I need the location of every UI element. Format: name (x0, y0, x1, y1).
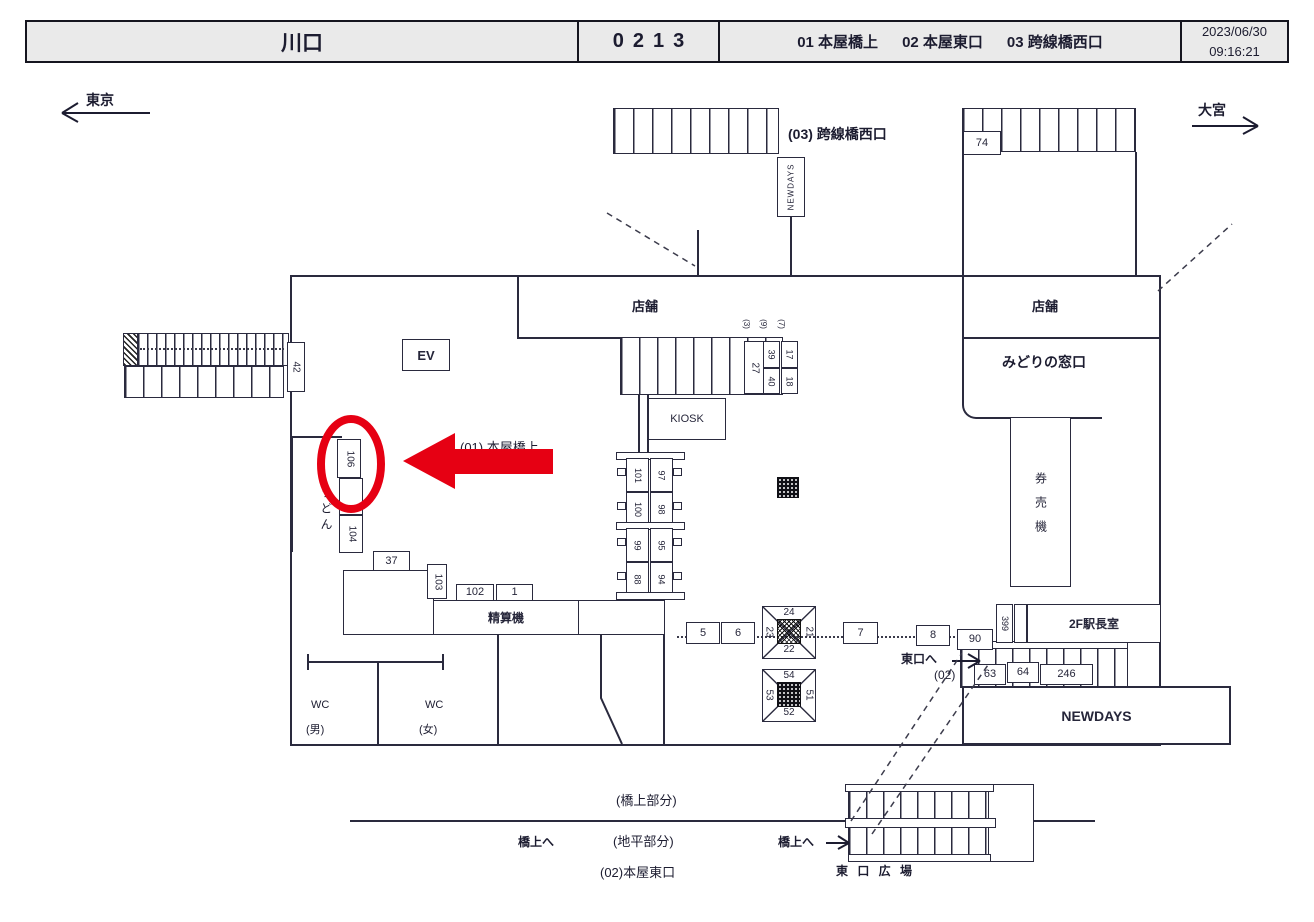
to-east-label: 東口へ (901, 650, 937, 667)
wc-male-sub: (男) (306, 721, 324, 737)
station-code: 0213 (577, 22, 720, 61)
gate-97: 97 (650, 458, 673, 492)
ref-label-3: (7) (771, 317, 791, 331)
area-legend-item-1: 01 本屋橋上 (797, 31, 878, 52)
to-east-code: (02) (934, 668, 955, 682)
escalator-cap (124, 334, 138, 365)
plaza-stairs-cap-top (845, 784, 994, 792)
wall (307, 654, 309, 670)
sign-24: 24 (776, 606, 802, 620)
plaza-stairs-lower-run (848, 826, 989, 856)
wall (517, 275, 519, 339)
sign-7: 7 (843, 622, 878, 644)
ticket-machine-label: 券売機 (1035, 460, 1047, 544)
wall (308, 661, 444, 663)
sign-53: 53 (756, 689, 782, 702)
sign-5: 5 (686, 622, 720, 644)
sign-246: 246 (1040, 664, 1093, 685)
plaza-stairs-cap-bottom (848, 854, 991, 862)
wc-male-label: WC (311, 699, 329, 711)
wall (790, 215, 792, 277)
gate-95: 95 (650, 528, 673, 562)
gate-99: 99 (626, 528, 649, 562)
sign-39: 39 (763, 341, 780, 368)
sign-51: 51 (796, 689, 822, 702)
sign-18: 18 (781, 368, 798, 394)
wall (291, 436, 293, 552)
shop-label-left: 店舗 (632, 296, 658, 315)
sign-399: 399 (996, 604, 1013, 643)
gate-101: 101 (626, 458, 649, 492)
sign-27: 27 (744, 341, 765, 394)
plaza-stairs-upper-run (848, 790, 989, 820)
small-box (1014, 604, 1027, 643)
sign-17: 17 (781, 341, 798, 368)
wall (442, 654, 444, 670)
sign-104: 104 (339, 515, 363, 553)
sign-23: 23 (756, 626, 782, 639)
sign-63: 63 (974, 664, 1006, 685)
udon-label: うどん (318, 486, 335, 534)
stationmaster-box: 2F駅長室 (1027, 604, 1161, 643)
plaza-stairs-cap-middle (845, 818, 996, 828)
gate-tab (673, 502, 682, 510)
sign-covered (339, 478, 363, 515)
gate-tab (617, 502, 626, 510)
sign-103: 103 (427, 564, 447, 599)
sign-52: 52 (774, 706, 804, 720)
area-legend-item-3: 03 跨線橋西口 (1007, 31, 1103, 52)
gate-88: 88 (626, 562, 649, 596)
sign-90: 90 (957, 629, 993, 650)
station-floor-plan: 川口 0213 01 本屋橋上 02 本屋東口 03 跨線橋西口 2023/06… (0, 0, 1314, 922)
newdays-main-box: NEWDAYS (962, 686, 1231, 745)
wall (497, 635, 499, 745)
counter-box (578, 600, 665, 635)
gate-100: 100 (626, 492, 649, 526)
wall (962, 337, 1161, 339)
sign-106: 106 (337, 439, 361, 478)
ground-part-label: (地平部分) (613, 831, 674, 850)
wall (1135, 152, 1137, 277)
escalator-centerline (140, 348, 284, 350)
timestamp: 2023/06/30 09:16:21 (1180, 22, 1287, 61)
gate-cap-bottom (616, 592, 685, 600)
sign-42: 42 (287, 342, 305, 392)
area-label-kosenkyo: (03) 跨線橋西口 (788, 124, 887, 144)
gate-94: 94 (650, 562, 673, 596)
platform-stairs (124, 366, 284, 398)
bridge-stairs-west-left (613, 108, 779, 154)
dashed-passage-line (1158, 224, 1232, 291)
midori-label: みどりの窓口 (1002, 352, 1086, 372)
shop-label-right: 店舗 (1032, 296, 1058, 315)
area-legend: 01 本屋橋上 02 本屋東口 03 跨線橋西口 (720, 22, 1180, 61)
sign-74: 74 (963, 131, 1001, 155)
kiosk-box: KIOSK (648, 398, 726, 440)
wc-female-label: WC (425, 699, 443, 711)
wall (517, 337, 622, 339)
wall (697, 230, 699, 277)
area-legend-item-2: 02 本屋東口 (902, 31, 983, 52)
wall (291, 436, 342, 438)
gate-tab (617, 468, 626, 476)
wall (962, 275, 964, 390)
gate-tab (673, 468, 682, 476)
pillar (777, 477, 799, 498)
east-plaza-label: 東 口 広 場 (836, 862, 915, 879)
sign-40: 40 (763, 368, 780, 394)
wc-female-sub: (女) (419, 721, 437, 737)
service-counter-box (343, 570, 434, 635)
sign-1: 1 (496, 584, 533, 601)
honya-east-label: (02)本屋東口 (600, 862, 675, 881)
platform-escalator (123, 333, 289, 366)
header-bar: 川口 0213 01 本屋橋上 02 本屋東口 03 跨線橋西口 2023/06… (25, 20, 1289, 63)
gate-tab (617, 538, 626, 546)
sign-54: 54 (776, 669, 802, 683)
sign-37: 37 (373, 551, 410, 571)
to-bridge-left-label: 橋上へ (518, 833, 554, 850)
area-label-honya: (01) 本屋橋上 (460, 437, 539, 456)
direction-tokyo: 東京 (86, 90, 114, 110)
date-text: 2023/06/30 (1202, 22, 1267, 42)
sign-21: 21 (796, 626, 822, 639)
sign-6: 6 (721, 622, 755, 644)
sign-22: 22 (774, 643, 804, 657)
wall (962, 152, 964, 277)
wall (638, 395, 640, 453)
newdays-top-box: NEWDAYS (777, 157, 805, 217)
bridge-part-label: (橋上部分) (616, 790, 677, 809)
gate-98: 98 (650, 492, 673, 526)
time-text: 09:16:21 (1209, 42, 1260, 62)
to-bridge-arrow-icon (826, 836, 849, 849)
station-name: 川口 (27, 22, 577, 61)
wall (377, 661, 379, 745)
sign-102: 102 (456, 584, 494, 601)
ref-label-2: (9) (753, 317, 773, 331)
elevator-box: EV (402, 339, 450, 371)
ticket-machine-box: 券売機 (1010, 417, 1071, 587)
gate-tab (617, 572, 626, 580)
dashed-passage-line (607, 213, 695, 266)
gate-tab (673, 538, 682, 546)
to-bridge-right-label: 橋上へ (778, 833, 814, 850)
gate-tab (673, 572, 682, 580)
midori-corner-wall (962, 388, 982, 419)
direction-omiya: 大宮 (1198, 100, 1226, 120)
sign-8: 8 (916, 625, 950, 646)
fare-adjust-box: 精算機 (433, 600, 579, 635)
sign-64: 64 (1007, 662, 1039, 683)
